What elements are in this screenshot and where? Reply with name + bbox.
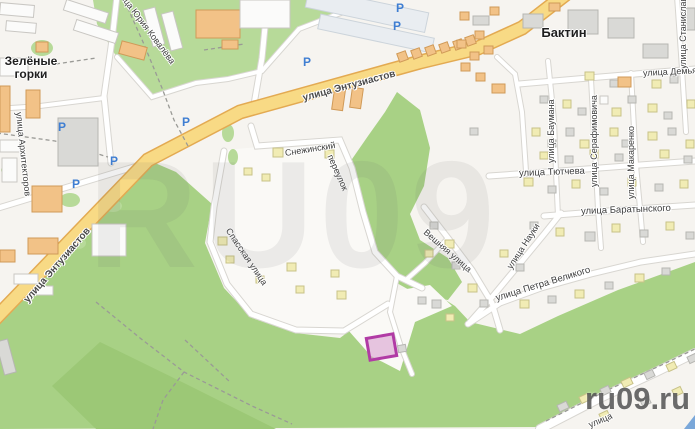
building — [430, 222, 438, 229]
building — [608, 18, 634, 38]
building — [26, 90, 40, 118]
building — [687, 100, 695, 108]
building — [680, 180, 688, 188]
building — [610, 128, 618, 136]
parking-icon: P — [72, 177, 80, 191]
building — [36, 42, 48, 52]
building — [566, 128, 574, 136]
building — [476, 73, 485, 81]
building — [666, 222, 674, 230]
building — [92, 224, 126, 256]
building — [468, 284, 477, 292]
building — [575, 290, 584, 298]
building — [643, 44, 668, 58]
building — [457, 40, 466, 48]
building — [28, 238, 58, 254]
building — [480, 300, 488, 307]
building — [0, 250, 15, 262]
building — [287, 263, 296, 271]
building — [640, 230, 648, 237]
lawn — [60, 193, 80, 207]
street-label: улица Тютчева — [519, 166, 585, 179]
building — [548, 296, 556, 303]
building — [244, 168, 252, 175]
building — [549, 3, 560, 11]
building — [470, 52, 479, 60]
building — [668, 128, 676, 135]
street-label: улица Серафимовича — [589, 95, 599, 187]
parking-icon: P — [110, 154, 118, 168]
building — [461, 63, 470, 71]
selected-parcel-highlight[interactable] — [366, 334, 396, 360]
place-label: Бактин — [534, 26, 594, 41]
map-canvas[interactable]: PPPPPPP улица Энтузиастовулица Энтузиаст… — [0, 0, 695, 429]
building — [655, 184, 663, 191]
building — [484, 46, 493, 54]
building — [222, 40, 238, 49]
building — [615, 154, 623, 161]
building — [585, 72, 594, 80]
building — [628, 96, 636, 103]
place-label: Зелёные горки — [2, 55, 60, 82]
building — [0, 3, 34, 18]
building — [2, 158, 17, 182]
building — [397, 344, 406, 352]
building — [460, 12, 469, 20]
building — [578, 108, 586, 115]
building — [226, 256, 234, 263]
building — [500, 250, 508, 257]
building — [660, 150, 669, 158]
building — [662, 268, 670, 275]
lawn — [228, 149, 238, 165]
street-label: улица Баумана — [546, 99, 556, 163]
building — [196, 10, 240, 38]
building — [6, 21, 37, 34]
building — [240, 0, 290, 28]
building — [618, 77, 631, 87]
building — [492, 84, 505, 93]
building — [0, 86, 10, 132]
parking-icon: P — [58, 120, 66, 134]
building — [524, 178, 533, 186]
parking-icon: P — [396, 1, 404, 15]
parking-icon: P — [393, 19, 401, 33]
building — [664, 112, 672, 119]
building — [635, 274, 644, 282]
building — [600, 188, 608, 195]
building — [686, 140, 694, 148]
building — [516, 264, 524, 271]
building — [556, 228, 564, 236]
building — [475, 31, 484, 39]
parking-icon: P — [303, 55, 311, 69]
building — [648, 132, 657, 140]
building — [580, 140, 589, 148]
street-label: улица Макаренко — [626, 126, 636, 199]
building — [652, 80, 661, 88]
building — [600, 96, 608, 104]
building — [572, 180, 580, 188]
building — [565, 156, 573, 163]
building — [670, 76, 678, 83]
building — [337, 291, 346, 299]
building — [605, 282, 613, 289]
building — [218, 237, 227, 245]
building — [585, 232, 595, 241]
building — [273, 148, 283, 157]
street-label: улица Станислав — [678, 0, 688, 69]
building — [490, 7, 499, 15]
building — [532, 128, 540, 136]
building — [296, 286, 304, 293]
building — [331, 270, 339, 277]
building — [432, 300, 441, 308]
building — [425, 250, 433, 257]
building — [548, 186, 556, 193]
parking-icon: P — [182, 115, 190, 129]
building — [612, 224, 620, 232]
building — [446, 314, 454, 321]
building — [32, 186, 62, 212]
building — [520, 300, 529, 308]
building — [612, 108, 621, 116]
building — [470, 128, 478, 135]
building — [610, 80, 618, 87]
building — [473, 16, 489, 25]
building — [418, 297, 426, 304]
building — [686, 232, 694, 239]
building — [262, 174, 270, 181]
building — [684, 156, 692, 163]
building — [648, 104, 657, 112]
building — [563, 100, 571, 108]
